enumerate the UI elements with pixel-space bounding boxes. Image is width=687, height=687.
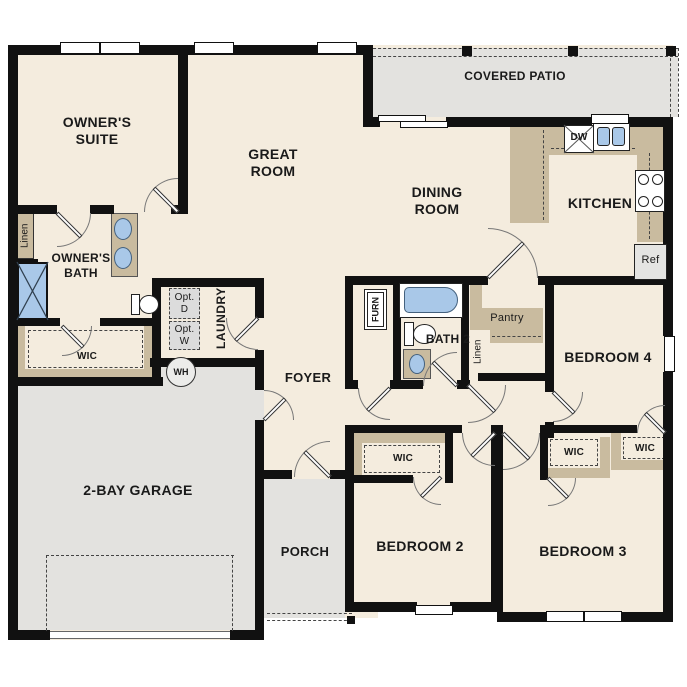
patio-post (666, 46, 676, 56)
toilet-bowl (139, 295, 159, 314)
wic-bedroom4-shelf (611, 460, 665, 470)
porch-edge (267, 613, 352, 614)
room-label-bedroom4: BEDROOM 4 (548, 349, 668, 366)
wall (345, 425, 462, 433)
window (194, 42, 234, 54)
wall (100, 318, 160, 326)
sliding-door-panel (400, 121, 448, 128)
wall (663, 117, 673, 336)
wall (478, 373, 545, 381)
porch-edge (267, 620, 352, 621)
wall (230, 630, 264, 640)
door-bedroom2 (462, 433, 495, 466)
window (100, 42, 140, 54)
room-label-bath2: BATH 2 (424, 332, 472, 347)
room-label-owners-suite: OWNER'S SUITE (47, 114, 147, 148)
patio-post (462, 46, 472, 56)
closet-label-pantry: Pantry (479, 312, 535, 325)
window (591, 114, 629, 124)
door-wic-bedroom2 (413, 477, 441, 505)
closet-label-linen-owners: Linen (16, 216, 34, 256)
garage-door-track (46, 555, 47, 631)
door-front-entry (294, 441, 330, 477)
wall (90, 205, 114, 214)
burner (652, 174, 663, 185)
door-wic-bedroom4 (637, 405, 665, 433)
floor-plan: Ref DW Opt. D Opt. W WH OWNER'S SUITE GR… (0, 0, 687, 687)
door-bedroom3 (503, 433, 540, 470)
garage-door-track (232, 555, 233, 631)
room-label-kitchen: KITCHEN (550, 195, 650, 212)
wall (255, 278, 264, 318)
porch-post (347, 616, 355, 624)
water-heater: WH (166, 357, 196, 387)
window (415, 605, 453, 615)
garage-slab (17, 377, 157, 630)
wic-owners-shelf (17, 369, 155, 377)
patio-edge (670, 48, 671, 117)
wall (497, 612, 546, 622)
sink-basin (612, 127, 625, 146)
wall (255, 358, 264, 390)
room-label-garage: 2-BAY GARAGE (83, 482, 193, 499)
patio-edge (368, 56, 678, 57)
closet-label-wic-owners: WIC (62, 351, 112, 363)
door-bath2 (423, 352, 457, 386)
wall (352, 475, 413, 483)
wall (8, 630, 50, 640)
burner (652, 196, 663, 207)
door-garage-entry (264, 390, 294, 420)
room-label-great-room: GREAT ROOM (228, 146, 318, 180)
patio-edge (368, 48, 678, 49)
wall (445, 433, 453, 483)
closet-label-linen-hall: Linen (470, 333, 486, 371)
wall (8, 377, 163, 386)
wall (255, 470, 292, 479)
wall (363, 45, 373, 125)
closet-label-wic-bedroom3: WIC (549, 447, 599, 459)
wall (622, 612, 673, 622)
wall (345, 380, 358, 389)
sink (114, 218, 132, 240)
wall (178, 45, 188, 214)
room-label-owners-bath: OWNER'S BATH (38, 251, 124, 280)
sink-basin (597, 127, 610, 146)
burner (638, 174, 649, 185)
wall (540, 425, 637, 433)
garage-door-track (46, 555, 234, 556)
dishwasher-label: DW (564, 132, 594, 144)
door-hall-entry (488, 228, 538, 278)
wall (345, 285, 353, 388)
room-label-foyer: FOYER (277, 370, 339, 386)
optional-washer-label: Opt. W (170, 324, 199, 347)
optional-dryer-label: Opt. D (170, 292, 199, 315)
wic-bedroom3-shelf (548, 468, 610, 478)
wall (345, 425, 354, 610)
door-furnace-closet (358, 388, 390, 420)
refrigerator-label: Ref (634, 254, 667, 267)
wall (8, 205, 57, 214)
door-owners-suite-entry (144, 178, 178, 212)
equipment-label-furnace: FURN (366, 291, 385, 328)
wall (8, 45, 18, 640)
door-wic-bedroom3 (548, 478, 576, 506)
water-heater-label: WH (174, 367, 189, 377)
room-label-bedroom2: BEDROOM 2 (360, 538, 480, 555)
room-label-dining-room: DINING ROOM (391, 184, 483, 218)
window (584, 611, 622, 622)
door-bedroom4 (553, 392, 583, 422)
counter-edge (543, 130, 544, 220)
wic-bedroom2-shelf (352, 433, 445, 443)
door-linen-hall (468, 385, 506, 423)
closet-label-wic-bedroom4: WIC (620, 443, 670, 455)
wall (450, 602, 495, 612)
bathtub (404, 287, 458, 313)
wall (390, 380, 423, 389)
room-label-laundry: LAUNDRY (211, 283, 231, 353)
linen-hall-rod (492, 336, 541, 337)
room-label-porch: PORCH (274, 544, 336, 560)
wall (255, 420, 264, 640)
window (60, 42, 100, 54)
door-owners-suite-to-bath (57, 213, 91, 247)
room-label-bedroom3: BEDROOM 3 (523, 543, 643, 560)
wall (152, 278, 161, 385)
window (546, 611, 584, 622)
wall (545, 276, 554, 392)
patio-edge (678, 48, 679, 117)
wall (345, 602, 417, 612)
window (317, 42, 357, 54)
patio-post (568, 46, 578, 56)
wall (540, 433, 548, 480)
garage-door-opening (50, 631, 230, 639)
closet-label-wic-bedroom2: WIC (378, 453, 428, 465)
room-label-covered-patio: COVERED PATIO (459, 69, 571, 84)
